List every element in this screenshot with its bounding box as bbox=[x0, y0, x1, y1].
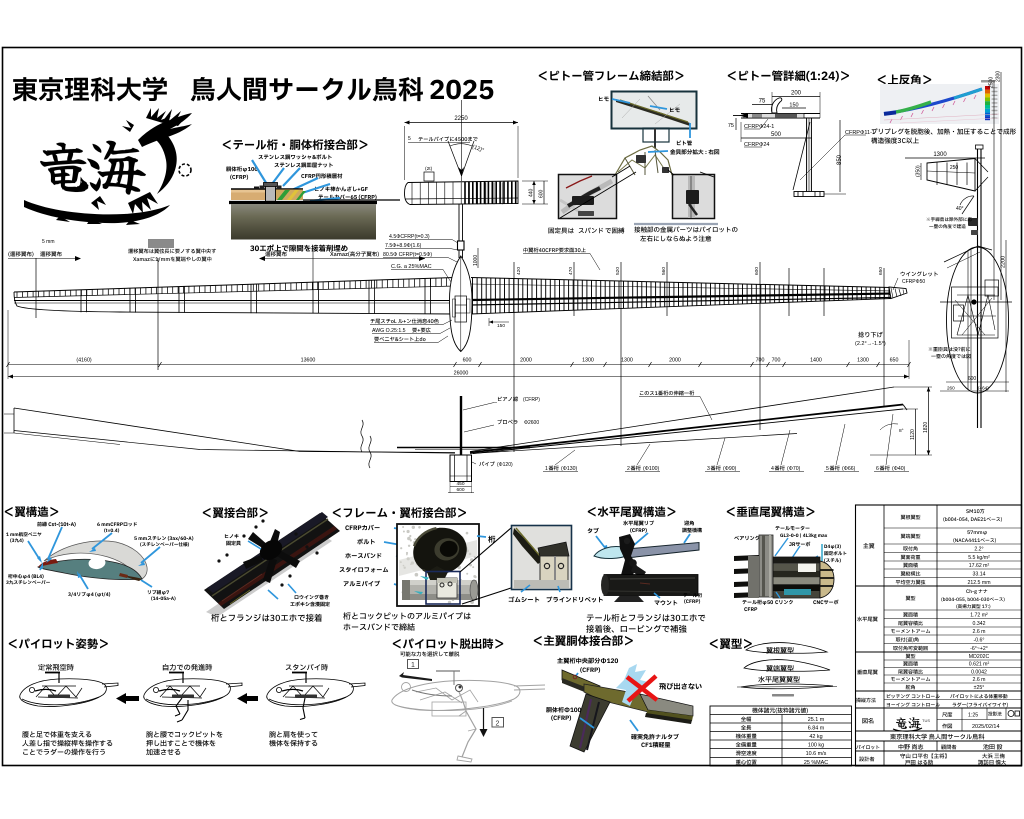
svg-text:(Φ100): (Φ100) bbox=[643, 466, 660, 472]
svg-text:1300: 1300 bbox=[933, 152, 947, 158]
svg-text:1300: 1300 bbox=[621, 358, 633, 364]
svg-text:600: 600 bbox=[754, 267, 760, 275]
svg-text:10.6 m/s: 10.6 m/s bbox=[806, 751, 827, 757]
svg-text:(12)°: (12)° bbox=[471, 144, 484, 154]
svg-text:C.G. a 25%MAC: C.G. a 25%MAC bbox=[391, 264, 432, 270]
svg-text:40°: 40° bbox=[956, 206, 964, 212]
svg-text:2: 2 bbox=[496, 721, 500, 728]
svg-text:260: 260 bbox=[947, 386, 955, 391]
svg-text:Φ2600: Φ2600 bbox=[524, 420, 539, 426]
svg-text:(2.2°→-1.5°): (2.2°→-1.5°) bbox=[855, 341, 886, 347]
svg-text:(Φ130): (Φ130) bbox=[561, 466, 578, 472]
svg-text:850: 850 bbox=[837, 154, 843, 165]
svg-text:(2t): (2t) bbox=[425, 166, 433, 172]
svg-text:-6°~+2°: -6°~+2° bbox=[970, 646, 988, 652]
svg-text:6: 6 bbox=[876, 466, 879, 472]
svg-text:2300: 2300 bbox=[996, 71, 1002, 82]
svg-text:200: 200 bbox=[791, 91, 802, 97]
svg-text:212.5 mm: 212.5 mm bbox=[967, 580, 990, 586]
svg-text:600: 600 bbox=[539, 189, 545, 198]
svg-text:150: 150 bbox=[497, 323, 505, 329]
svg-text:4.5ΦCFRP(t=0.3): 4.5ΦCFRP(t=0.3) bbox=[389, 234, 430, 240]
svg-text:TUS: TUS bbox=[922, 718, 930, 723]
svg-text:80.5Φ CFRP(t=0.5Φ): 80.5Φ CFRP(t=0.5Φ) bbox=[383, 252, 432, 258]
svg-text:600: 600 bbox=[463, 358, 472, 364]
svg-text:2: 2 bbox=[627, 466, 630, 472]
svg-text:1400: 1400 bbox=[810, 358, 822, 364]
svg-text:±25°: ±25° bbox=[974, 685, 985, 691]
svg-text:8°: 8° bbox=[899, 428, 904, 434]
svg-text:2.6 m: 2.6 m bbox=[973, 677, 986, 683]
svg-text:3: 3 bbox=[707, 466, 710, 472]
svg-text:(Φ120): (Φ120) bbox=[497, 462, 513, 468]
svg-text:2025/02/14: 2025/02/14 bbox=[972, 724, 1000, 730]
svg-text:1: 1 bbox=[411, 662, 415, 669]
svg-text:420: 420 bbox=[516, 267, 522, 275]
svg-text:0.621 m²: 0.621 m² bbox=[969, 662, 990, 668]
svg-text:600: 600 bbox=[968, 376, 977, 382]
svg-text:450: 450 bbox=[456, 481, 464, 487]
svg-text:5 mm: 5 mm bbox=[42, 239, 55, 245]
svg-text:1120: 1120 bbox=[910, 429, 916, 440]
svg-text:25.1 m: 25.1 m bbox=[808, 717, 825, 723]
svg-text:AWG O.25:1.5: AWG O.25:1.5 bbox=[372, 328, 406, 334]
svg-text:(Φ90): (Φ90) bbox=[723, 466, 737, 472]
svg-text:13600: 13600 bbox=[301, 358, 316, 364]
svg-text:75: 75 bbox=[728, 123, 734, 129]
svg-text:42 kg: 42 kg bbox=[809, 734, 822, 740]
svg-text:100 kg: 100 kg bbox=[808, 743, 824, 749]
svg-text:1300: 1300 bbox=[582, 358, 594, 364]
svg-text:1000: 1000 bbox=[473, 255, 479, 266]
svg-text:(4160): (4160) bbox=[76, 358, 92, 364]
svg-text:2000: 2000 bbox=[669, 358, 681, 364]
svg-text:(Φ40): (Φ40) bbox=[892, 466, 906, 472]
svg-text:CFRPΦ50: CFRPΦ50 bbox=[902, 279, 925, 285]
svg-text:1820: 1820 bbox=[923, 422, 929, 433]
svg-text:4: 4 bbox=[771, 466, 774, 472]
svg-text:700: 700 bbox=[756, 358, 765, 364]
svg-text:650: 650 bbox=[890, 358, 899, 364]
svg-text:(Φ70): (Φ70) bbox=[787, 466, 801, 472]
svg-text:2.6 m: 2.6 m bbox=[973, 629, 986, 635]
svg-text:2500: 2500 bbox=[989, 77, 995, 88]
svg-text:1:25: 1:25 bbox=[968, 713, 978, 719]
svg-text:1300: 1300 bbox=[857, 358, 869, 364]
svg-text:5: 5 bbox=[826, 466, 829, 472]
svg-text:1: 1 bbox=[545, 466, 548, 472]
svg-text:(464): (464) bbox=[978, 386, 989, 391]
svg-text:250: 250 bbox=[950, 165, 959, 171]
svg-text:2200: 2200 bbox=[1001, 256, 1007, 268]
svg-text:75: 75 bbox=[759, 99, 766, 105]
svg-text:5.5 kg/m²: 5.5 kg/m² bbox=[968, 555, 990, 561]
svg-text:600: 600 bbox=[456, 487, 464, 493]
svg-text:5: 5 bbox=[408, 136, 411, 142]
svg-text:6.84 m: 6.84 m bbox=[808, 726, 825, 732]
svg-text:MD202C: MD202C bbox=[969, 654, 990, 660]
svg-text:500: 500 bbox=[771, 132, 782, 138]
svg-text:25 %MAC: 25 %MAC bbox=[804, 760, 828, 766]
svg-text:440: 440 bbox=[529, 188, 535, 197]
svg-text:2.2°: 2.2° bbox=[974, 547, 983, 553]
svg-text:1.72 m²: 1.72 m² bbox=[970, 613, 988, 619]
svg-text:650: 650 bbox=[878, 267, 884, 275]
svg-text:560: 560 bbox=[661, 267, 667, 275]
svg-text:2000: 2000 bbox=[520, 358, 532, 364]
svg-text:700: 700 bbox=[772, 358, 781, 364]
svg-text:150: 150 bbox=[789, 103, 798, 109]
svg-text:0.342: 0.342 bbox=[973, 621, 986, 627]
svg-text:520: 520 bbox=[615, 267, 621, 275]
svg-text:0.0042: 0.0042 bbox=[971, 670, 987, 676]
svg-text:470: 470 bbox=[568, 267, 574, 275]
svg-text:17.62 m²: 17.62 m² bbox=[969, 563, 990, 569]
svg-text:33.14: 33.14 bbox=[973, 572, 986, 578]
svg-text:26000: 26000 bbox=[454, 371, 469, 377]
svg-text:(350): (350) bbox=[916, 165, 922, 177]
svg-text:(CFRP): (CFRP) bbox=[523, 397, 540, 403]
svg-text:7.5Φ+8.9Φ(1.6): 7.5Φ+8.9Φ(1.6) bbox=[385, 243, 422, 249]
svg-text:-0.6°: -0.6° bbox=[973, 638, 984, 644]
svg-text:(Φ66): (Φ66) bbox=[842, 466, 856, 472]
